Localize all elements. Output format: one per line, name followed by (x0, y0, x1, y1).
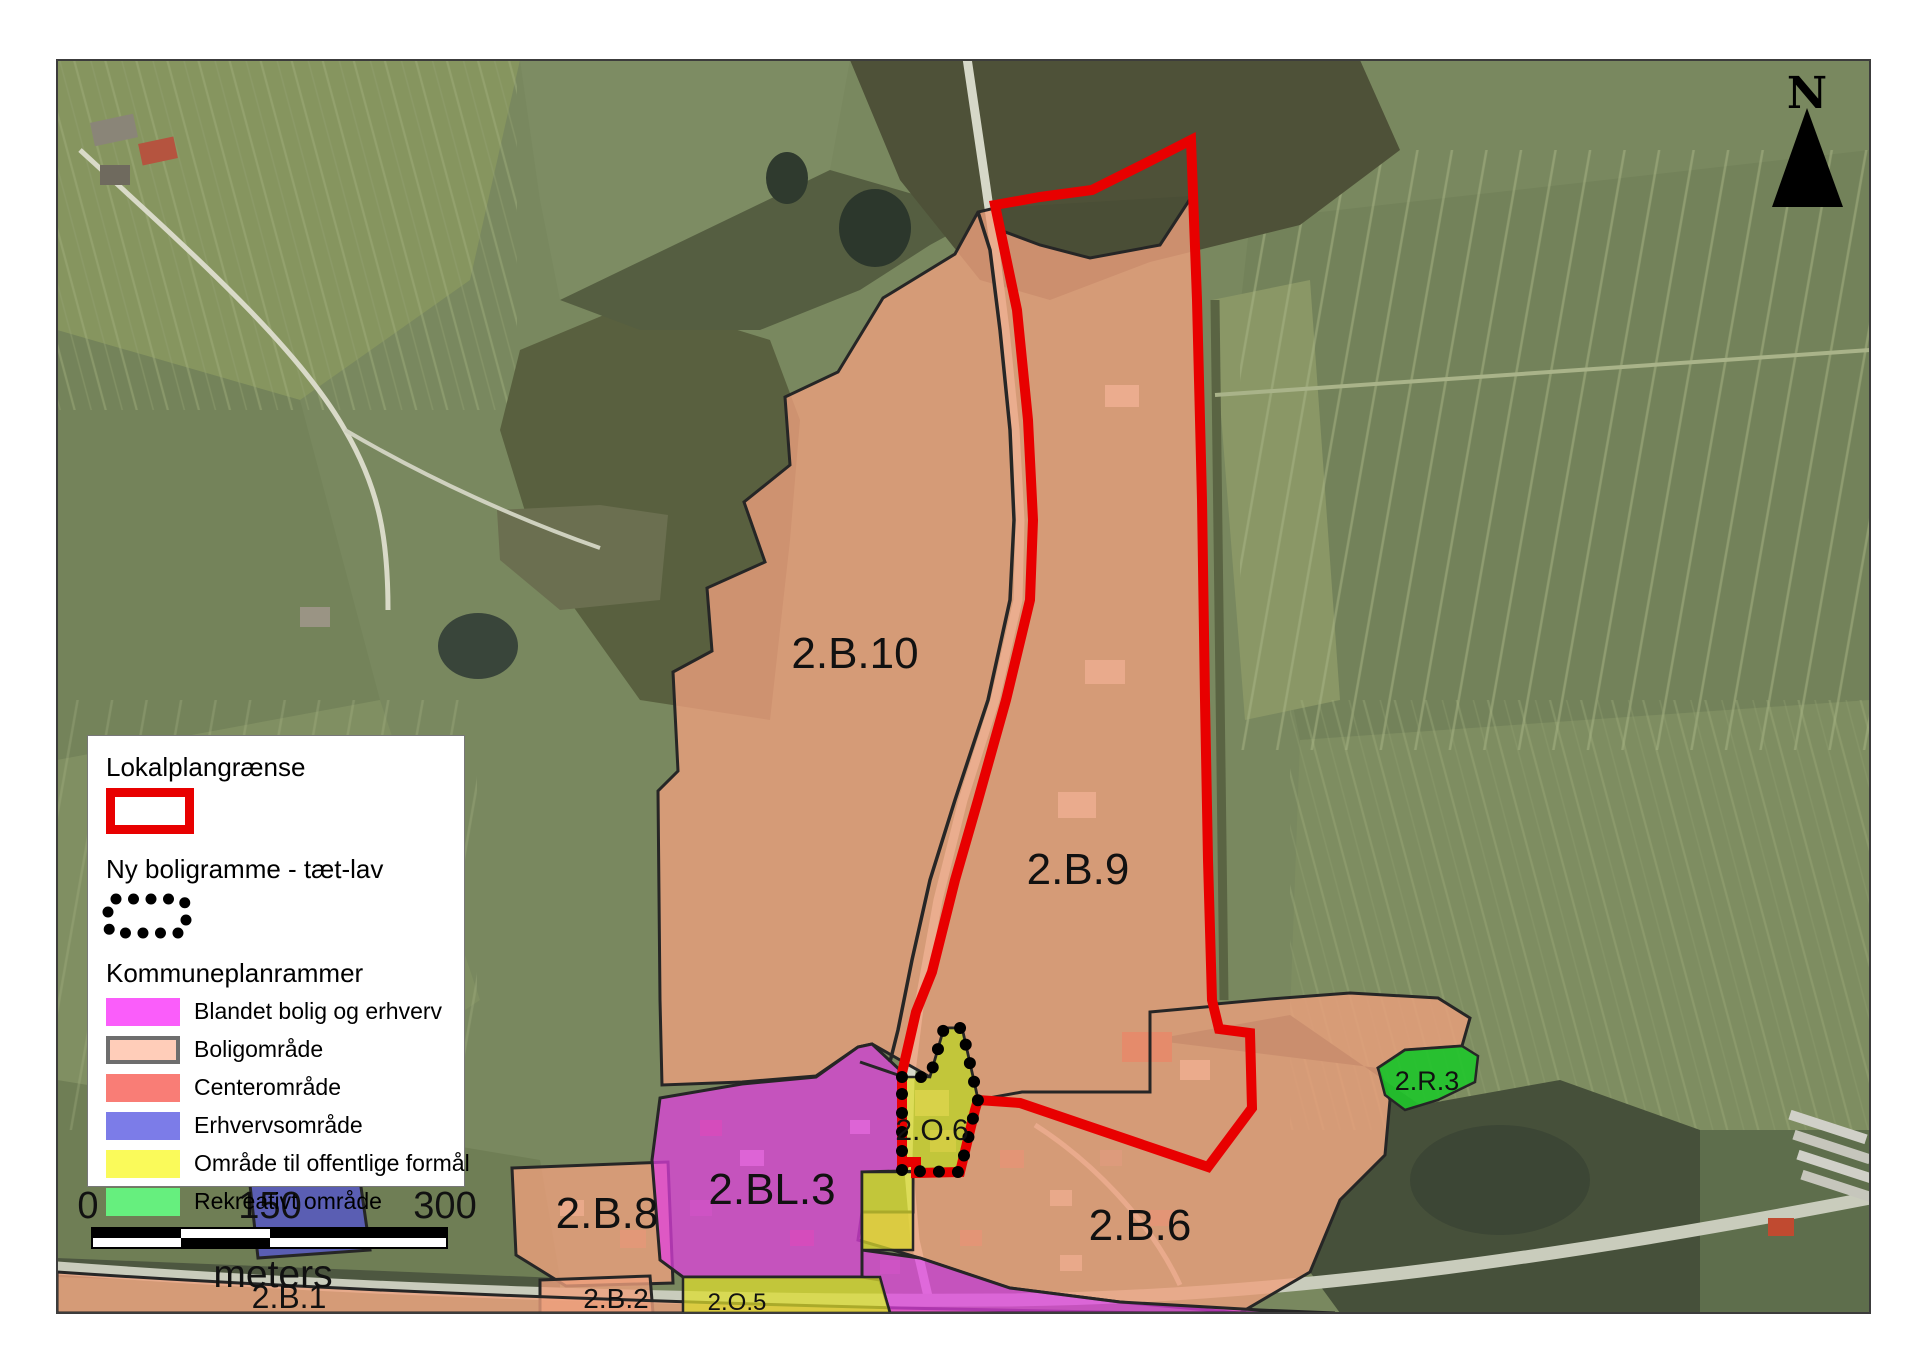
legend-item-label: Boligområde (194, 1036, 323, 1063)
legend-item-rekreativt: Rekreativt område (106, 1187, 464, 1216)
lokalplan-boundary-swatch (106, 788, 194, 834)
tramlines (57, 60, 517, 410)
legend-item-label: Blandet bolig og erhverv (194, 998, 442, 1025)
legend-panel: Lokalplangrænse Ny boligramme - tæt-lav … (87, 735, 465, 1187)
label-2bl3: 2.BL.3 (708, 1165, 835, 1214)
label-2b9: 2.B.9 (1027, 845, 1130, 894)
zone-yellow-band (862, 1172, 913, 1250)
legend-item-label: Centerområde (194, 1074, 341, 1101)
legend-item-centeromraade: Centerområde (106, 1073, 464, 1102)
label-2b6: 2.B.6 (1089, 1201, 1192, 1250)
legend-item-boligomraade: Boligområde (106, 1035, 464, 1064)
lake (1410, 1125, 1590, 1235)
legend-lokalplan-title: Lokalplangrænse (106, 752, 464, 782)
swatch-blandet (106, 998, 180, 1026)
legend-item-label: Rekreativt område (194, 1188, 382, 1215)
legend-item-blandet: Blandet bolig og erhverv (106, 997, 464, 1026)
label-2o6: 2.O.6 (895, 1114, 968, 1147)
pond (438, 613, 518, 679)
lokalplan-map-page: 2.B.10 2.B.9 2.B.8 2.BL.3 2.B.6 2.O.6 2.… (0, 0, 1920, 1356)
label-2b10: 2.B.10 (791, 629, 918, 678)
swatch-centeromraade (106, 1074, 180, 1102)
swatch-boligomraade (106, 1036, 180, 1064)
label-2o5: 2.O.5 (708, 1289, 767, 1316)
scale-unit-label: meters (213, 1253, 332, 1296)
scale-tick-0: 0 (77, 1185, 98, 1227)
legend-item-label: Område til offentlige formål (194, 1150, 470, 1177)
swatch-rekreativt (106, 1188, 180, 1216)
legend-item-erhvervsomraade: Erhvervsområde (106, 1111, 464, 1140)
tramlines (1240, 150, 1870, 750)
boligramme-dotted-swatch (98, 890, 208, 942)
label-2r3: 2.R.3 (1395, 1066, 1460, 1096)
legend-kommuneplan-title: Kommuneplanrammer (106, 958, 464, 988)
pond (766, 152, 808, 204)
pond (839, 189, 911, 267)
swatch-offentlige (106, 1150, 180, 1178)
legend-item-offentlige: Område til offentlige formål (106, 1149, 464, 1178)
label-2b2: 2.B.2 (583, 1283, 648, 1314)
legend-boligramme-title: Ny boligramme - tæt-lav (106, 854, 464, 884)
swatch-erhvervsomraade (106, 1112, 180, 1140)
legend-item-label: Erhvervsområde (194, 1112, 363, 1139)
label-2b8: 2.B.8 (556, 1189, 659, 1238)
